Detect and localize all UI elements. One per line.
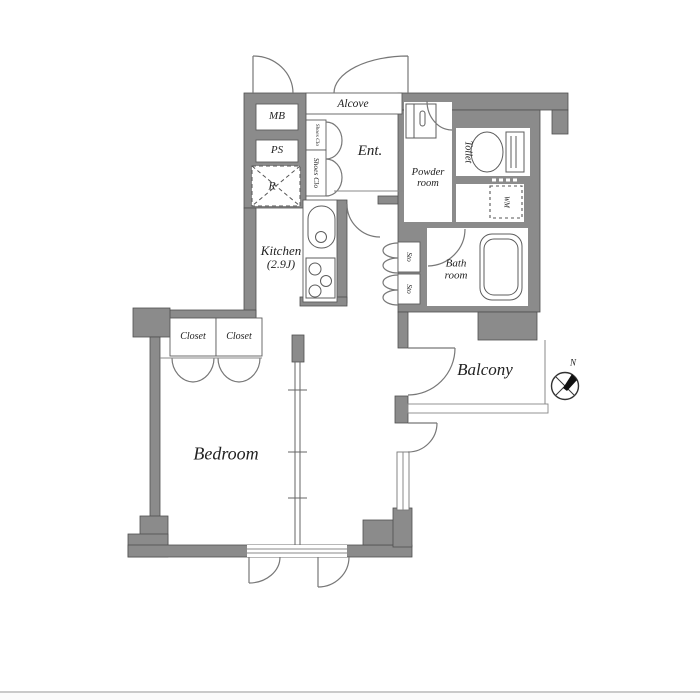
label-kitchen: Kitchen (2.9J) xyxy=(261,244,301,270)
label-bath-room: Bath room xyxy=(445,258,468,281)
terrace-door-right-arc xyxy=(318,557,349,587)
vanity-faucet xyxy=(420,111,425,126)
label-kitchen-line1: Kitchen xyxy=(261,244,301,258)
stove-burner xyxy=(309,263,321,275)
wall xyxy=(393,508,412,547)
label-shoes-closet-small: Shoes Clo xyxy=(313,124,319,146)
label-closet-left: Closet xyxy=(180,332,206,343)
label-mb: MB xyxy=(269,111,285,123)
wall xyxy=(398,312,408,348)
wall xyxy=(552,110,568,134)
wall-pillar xyxy=(133,308,170,337)
partition-lines xyxy=(295,362,300,545)
storage-upper-bifold xyxy=(383,243,398,273)
entrance-door-arc xyxy=(334,56,408,93)
label-entrance: Ent. xyxy=(358,144,383,160)
wall-partition-stub xyxy=(292,335,304,362)
stove-burner xyxy=(309,285,321,297)
toilet-tank xyxy=(506,132,524,172)
compass-icon xyxy=(552,373,579,400)
toilet-bowl xyxy=(471,132,503,172)
label-refrigerator: R xyxy=(268,180,275,193)
bedroom-window-opening xyxy=(247,545,347,557)
partition-ticks xyxy=(288,390,307,498)
balcony-railing xyxy=(408,404,548,413)
label-bath-line1: Bath xyxy=(445,258,468,270)
sink-drain xyxy=(316,232,327,243)
hall-door-arc xyxy=(347,204,380,237)
wall xyxy=(337,200,347,303)
mb-door-arc xyxy=(253,56,293,93)
label-washer: WM xyxy=(502,196,509,208)
wall xyxy=(244,208,256,318)
label-bedroom: Bedroom xyxy=(193,445,258,464)
shoes-bifold-arcs xyxy=(326,122,342,196)
label-ps: PS xyxy=(271,145,283,157)
label-storage-bottom: Sto xyxy=(405,284,413,294)
refrigerator-space xyxy=(252,166,300,206)
floorplan-page: MB PS R Alcove Shoes Clo Shoes Clo Ent. … xyxy=(0,0,700,700)
label-alcove: Alcove xyxy=(337,98,368,110)
wall xyxy=(395,396,408,423)
label-bath-line2: room xyxy=(445,270,468,282)
stove-burner xyxy=(321,276,332,287)
balcony-door-arc xyxy=(408,348,455,395)
label-toilet: Toilet xyxy=(462,141,473,163)
terrace-door-left-arc xyxy=(249,557,280,583)
label-kitchen-line2: (2.9J) xyxy=(261,258,301,271)
label-closet-right: Closet xyxy=(226,332,252,343)
wall xyxy=(150,337,160,523)
label-compass-north: N xyxy=(570,358,576,367)
label-powder-line2: room xyxy=(412,178,445,189)
page-bottom-strip xyxy=(0,693,700,700)
sliding-partition xyxy=(288,362,307,545)
label-storage-top: Sto xyxy=(405,252,413,262)
living-side-door-arc xyxy=(408,423,437,452)
closet-left-bifold xyxy=(172,358,214,382)
label-balcony: Balcony xyxy=(457,361,513,379)
label-shoes-closet: Shoes Clo xyxy=(312,158,320,188)
closet-right-bifold xyxy=(218,358,260,382)
label-powder-line1: Powder xyxy=(412,167,445,178)
storage-lower-bifold xyxy=(383,275,398,305)
wall xyxy=(478,312,537,340)
bathtub-inner xyxy=(484,239,518,295)
wall-pillar xyxy=(363,520,395,545)
label-powder-room: Powder room xyxy=(412,167,445,189)
